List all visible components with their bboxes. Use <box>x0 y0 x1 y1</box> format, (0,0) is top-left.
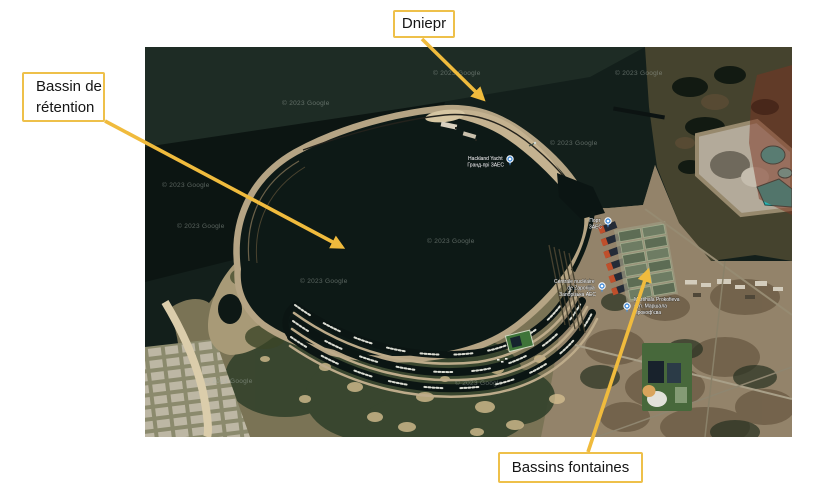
google-watermark: © 2023 Google <box>177 222 225 230</box>
svg-text:Порт ЗАЕС: Порт ЗАЕС <box>589 218 603 231</box>
callout-dniepr: Dniepr <box>393 10 455 38</box>
google-watermark: © 2023 Google <box>550 139 598 147</box>
google-watermark: © 2023 Google <box>282 99 330 107</box>
treatment-compound <box>642 343 692 411</box>
google-watermark: © 2023 Google <box>615 69 663 77</box>
google-watermark: © 2023 Google <box>427 237 475 245</box>
google-watermark: © 2023 Google <box>162 181 210 189</box>
callout-dniepr-text: Dniepr <box>402 14 446 34</box>
callout-bassin-retention: Bassin de rétention <box>22 72 105 122</box>
satellite-image: © 2023 Google© 2023 Google© 2023 Google©… <box>145 47 792 437</box>
svg-text:Hackland Yacht Гранд-п: Hackland Yacht Гранд-прі ЗАЕС <box>467 156 504 169</box>
callout-bassins-fontaines: Bassins fontaines <box>498 452 643 483</box>
callout-fontaines-text: Bassins fontaines <box>512 458 630 478</box>
google-watermark: © 2023 Google <box>205 377 253 385</box>
google-watermark: © 2023 Google <box>455 379 503 387</box>
callout-bassin-line1: Bassin de <box>36 76 102 97</box>
google-watermark: © 2023 Google <box>300 277 348 285</box>
google-watermark: © 2023 Google <box>433 69 481 77</box>
slide: © 2023 Google© 2023 Google© 2023 Google©… <box>0 0 828 488</box>
callout-bassin-line2: rétention <box>36 97 94 118</box>
